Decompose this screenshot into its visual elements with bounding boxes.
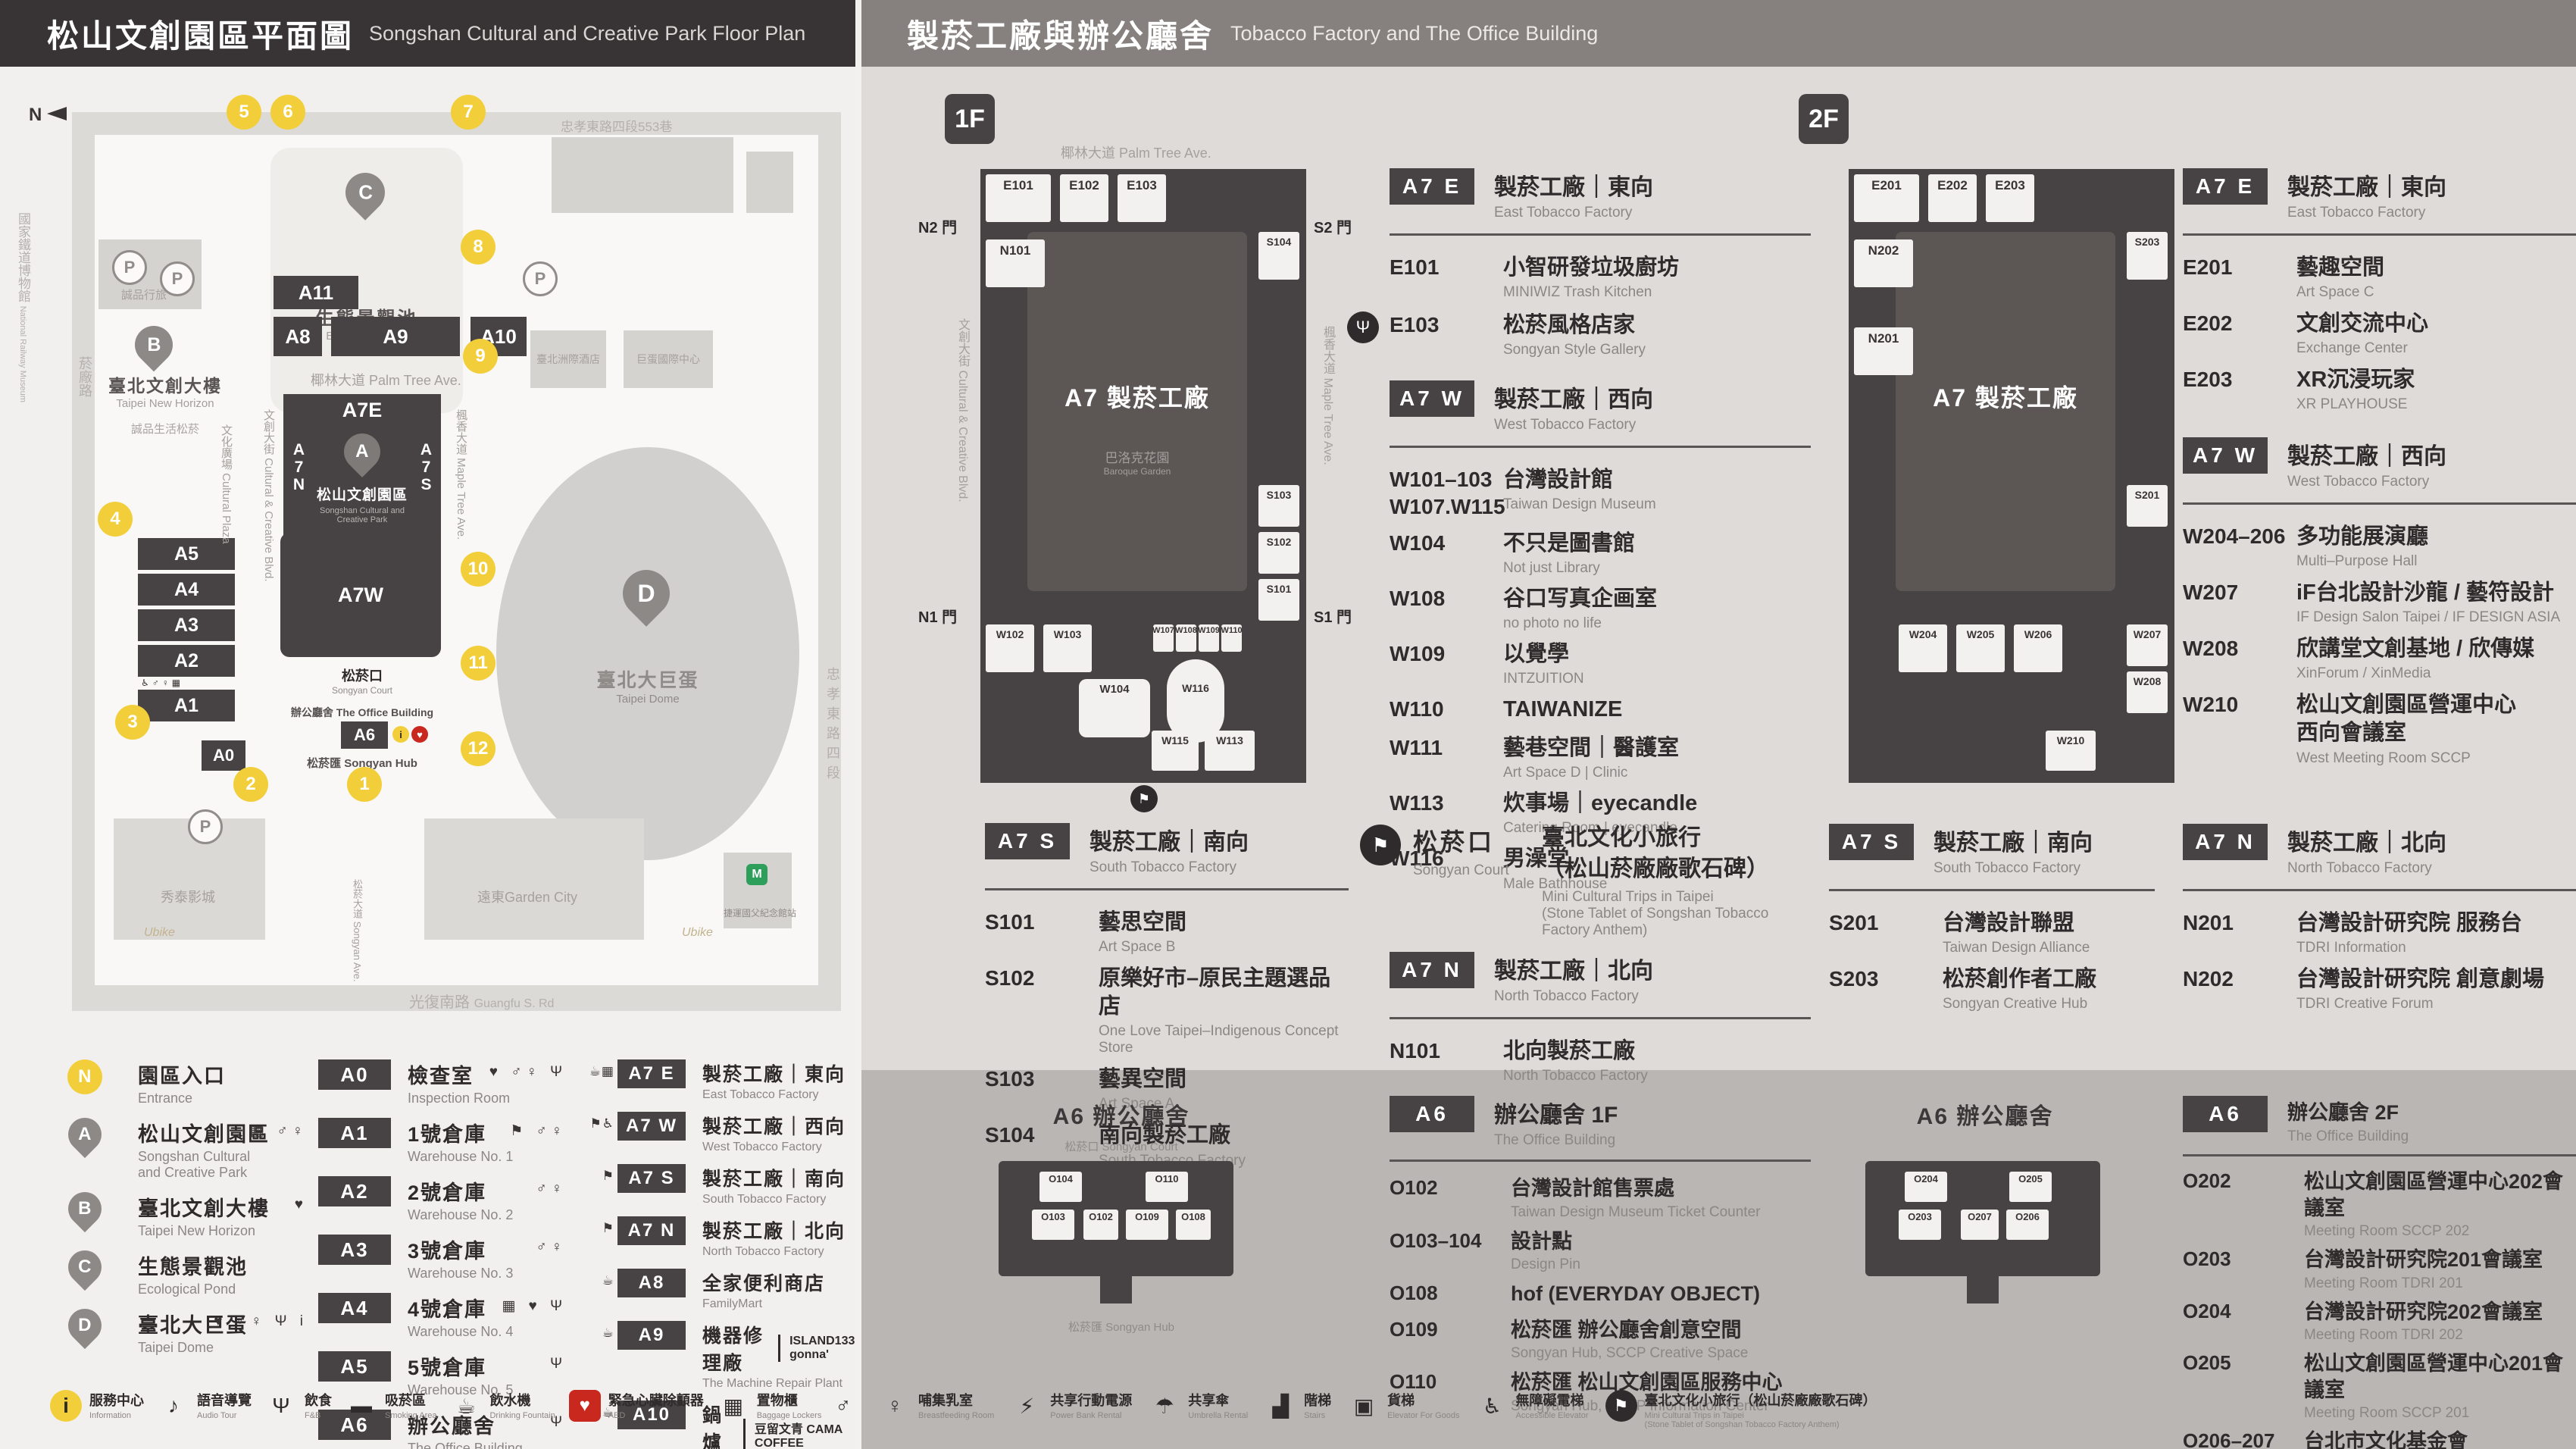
block-a8: A8 (274, 317, 322, 356)
left-header: 松山文創園區平面圖 Songshan Cultural and Creative… (0, 0, 858, 67)
legend-zh: 製菸工廠｜南向 (702, 1164, 846, 1191)
room-row: W110 TAIWANIZE (1390, 696, 1811, 726)
footer-en: Baggage Lockers (757, 1411, 822, 1420)
maple-ave-label: 楓香大道 Maple Tree Ave. (453, 409, 469, 540)
legend-zh: 1號倉庫 (408, 1118, 513, 1147)
plan2f-room: W205 (1956, 624, 2005, 672)
footer-item: ♪ 語音導覽 Audio Tour (158, 1390, 252, 1422)
footer-icon: ♀ (879, 1390, 911, 1422)
plan2f-room: S203 (2127, 232, 2168, 280)
plan1f-room: W108 (1176, 624, 1196, 652)
legend-icons: ▦ ♂♀ (250, 1122, 308, 1140)
plan2f-room: W206 (2014, 624, 2062, 672)
marker-1: 1 (347, 767, 382, 802)
road-label-lane553: 忠孝東路四段553巷 (561, 116, 672, 135)
room-row: S102 原樂好市–原民主題選品店One Love Taipei–Indigen… (985, 965, 1349, 1056)
footer-zh: 置物櫃 (757, 1390, 822, 1410)
plan1f-room: S101 (1258, 579, 1299, 621)
legend-en: Entrance (138, 1091, 226, 1106)
parking-icon: P (160, 261, 195, 296)
plan1f-room: W104 (1079, 679, 1150, 737)
footer-item: i 服務中心 Information (50, 1390, 144, 1422)
plan1f-room: N101 (986, 239, 1045, 287)
footer-zh: 飲水機 (489, 1390, 555, 1410)
footer-zh: 語音導覽 (197, 1390, 252, 1410)
footer-item: ⚑ 臺北文化小旅行（松山菸廠廠歌石碑） Mini Cultural Trips … (1605, 1390, 1877, 1429)
legend-row: A7 N 製菸工廠｜北向 North Tobacco Factory ⚑ (617, 1216, 858, 1259)
legend-en: East Tobacco Factory (702, 1088, 846, 1102)
legend-row: A4 4號倉庫 Warehouse No. 4 ▦ ♥ Ψ (318, 1293, 568, 1340)
plan2f-room: W207 (2127, 624, 2168, 666)
plan1f-room: S104 (1258, 232, 1299, 280)
legend-en: West Tobacco Factory (702, 1141, 846, 1154)
footer-zh: 無障礙電梯 (1516, 1390, 1589, 1410)
room-row: W108 谷口写真企画室no photo no life (1390, 585, 1811, 632)
section-a7n-2f: A7 N 製菸工廠｜北向North Tobacco Factory N201 台… (2183, 824, 2576, 1022)
footer-zh: 階梯 (1304, 1390, 1331, 1410)
footer-en: Mini Cultural Trips in Taipei (Stone Tab… (1645, 1411, 1877, 1429)
legend-row: A7 E 製菸工廠｜東向 East Tobacco Factory ☕▦ (617, 1059, 858, 1102)
legend-code: A9 (617, 1321, 686, 1350)
room-row: O205 松山文創園區營運中心201會議室Meeting Room SCCP 2… (2183, 1350, 2576, 1422)
room-row: W101–103 W107.W115 台灣設計館Taiwan Design Mu… (1390, 466, 1811, 521)
plan1f-road-top: 椰林大道 Palm Tree Ave. (1061, 142, 1211, 162)
block-a9: A9 (331, 317, 460, 356)
footer-en: AED (608, 1411, 704, 1420)
room-row: S201 台灣設計聯盟Taiwan Design Alliance (1829, 909, 2155, 956)
legend-zh: 5號倉庫 (408, 1351, 513, 1381)
section-a6-2f: A6 辦公廳舍 2FThe Office Building O202 松山文創園… (2183, 1096, 2576, 1449)
north-arrow-icon (47, 107, 67, 120)
songyan-court-label: 松菸口 Songyan Court (294, 665, 430, 696)
court-item-zh: 臺北文化小旅行 （松山菸廠廠歌石碑） (1542, 823, 1811, 884)
footer-item: ▬ 吸菸區 Smoking Area (345, 1390, 436, 1422)
a6-2f-room: O206 (2006, 1210, 2049, 1240)
footer-zh: 共享傘 (1188, 1390, 1248, 1410)
plan2f-room: N201 (1854, 327, 1913, 375)
room-row: O108 hof (EVERYDAY OBJECT) (1390, 1281, 1811, 1310)
block-a3: A3 (138, 609, 235, 641)
legend-en: Taipei Dome (138, 1340, 248, 1356)
court-item-en: Mini Cultural Trips in Taipei (Stone Tab… (1542, 889, 1811, 939)
a6-2f-room: O207 (1961, 1210, 1999, 1240)
legend-en: The Office Building (408, 1441, 523, 1449)
room-row: W111 藝巷空間｜醫護室Art Space D | Clinic (1390, 734, 1811, 781)
room-row: O109 松菸匯 辦公廳舍創意空間Songyan Hub, SCCP Creat… (1390, 1317, 1811, 1363)
legend-en: FamilyMart (702, 1297, 825, 1311)
footer-en: Elevator For Goods (1387, 1411, 1459, 1420)
court-title-en: Songyan Court (1413, 862, 1509, 879)
block-a1: A1 (138, 690, 235, 721)
legend-icons: ♥ (295, 1197, 308, 1213)
legend-row: A9 機器修理廠ISLAND133 gonna' The Machine Rep… (617, 1321, 858, 1391)
plan1f-room: S102 (1258, 532, 1299, 574)
legend-row: A1 1號倉庫 Warehouse No. 1 ⚑ ♂♀ (318, 1118, 568, 1165)
legend-row: C 生態景觀池 Ecological Pond (48, 1250, 309, 1297)
marker-5: 5 (227, 95, 261, 130)
block-a4: A4 (138, 574, 235, 606)
legend-zh: 製菸工廠｜北向 (702, 1216, 846, 1244)
a6-1f-room: O108 (1176, 1210, 1211, 1240)
plan2f-room: S201 (2127, 485, 2168, 527)
footer-item: ⚡ 共享行動電源 Power Bank Rental (1011, 1390, 1132, 1422)
legend-icons: ⚑ (572, 1169, 614, 1184)
plan1f-road-left: 文創大街 Cultural & Creative Blvd. (953, 318, 971, 502)
ubike-label: Ubike (144, 926, 175, 940)
legend-zh: 生態景觀池 (138, 1250, 248, 1280)
footer-icon: ♥ (569, 1390, 601, 1422)
footer-icon: i (50, 1390, 82, 1422)
legend-en: Inspection Room (408, 1091, 510, 1106)
plan1f-gate-s1: S1 門 (1314, 605, 1352, 627)
section-badge: A7 E (1390, 168, 1474, 205)
room-row: W204–206 多功能展演廳Multi–Purpose Hall (2183, 523, 2576, 570)
footer-item: ▣ 貨梯 Elevator For Goods (1348, 1390, 1459, 1422)
legend-en: Ecological Pond (138, 1282, 248, 1297)
legend-zh: 製菸工廠｜東向 (702, 1059, 846, 1087)
plan1f-room: W109 (1199, 624, 1219, 652)
plan2f-room: W208 (2127, 671, 2168, 713)
footer-icon: ▬ (345, 1390, 377, 1422)
marker-3: 3 (115, 705, 150, 740)
legend-en: Songshan Cultural and Creative Park (138, 1149, 270, 1181)
legend-row: A0 檢查室 Inspection Room ♥ ♂♀ Ψ (318, 1059, 568, 1106)
footer-en: Power Bank Rental (1050, 1411, 1132, 1420)
right-footer-strip: ♀ 哺集乳室 Breastfeeding Room ⚡ 共享行動電源 Power… (879, 1390, 1864, 1429)
palm-ave-label: 椰林大道 Palm Tree Ave. (311, 370, 461, 390)
legend-code: A1 (318, 1118, 391, 1148)
pin-a: A (336, 426, 388, 477)
floor-plan-poster: 松山文創園區平面圖 Songshan Cultural and Creative… (0, 0, 2576, 1449)
aed-icon: ♥ (411, 726, 428, 743)
legend-icons: ♂♀ (536, 1239, 567, 1256)
plan1f-room: W107 (1153, 624, 1174, 652)
legend-en: South Tobacco Factory (702, 1193, 846, 1206)
room-row: W109 以覺學INTZUITION (1390, 640, 1811, 687)
room-row: N101 北向製菸工廠North Tobacco Factory (1390, 1037, 1811, 1084)
parking-icon: P (188, 809, 223, 844)
room-row: S203 松菸創作者工廠Songyan Creative Hub (1829, 965, 2155, 1012)
legend-row: N 園區入口 Entrance (48, 1059, 309, 1106)
footer-en: Umbrella Rental (1188, 1411, 1248, 1420)
section-a7e-1f: A7 E 製菸工廠｜東向East Tobacco Factory E101 小智… (1390, 168, 1811, 369)
songyan-court-icon: ⚑ (1130, 785, 1158, 812)
footer-en: F&B (305, 1411, 332, 1420)
court-title-zh: 松菸口 (1413, 823, 1509, 858)
footer-icon: ♿ (1477, 1390, 1508, 1422)
legend-code: A7 W (617, 1112, 686, 1141)
legend-zh: 3號倉庫 (408, 1235, 513, 1264)
footer-zh: 緊急心臟除顫器 (608, 1390, 704, 1410)
room-row: Ψ E103 松菸風格店家Songyan Style Gallery (1390, 311, 1811, 358)
right-header: 製菸工廠與辦公廳舍 Tobacco Factory and The Office… (858, 0, 2576, 67)
room-row: W207 iF台北設計沙龍 / 藝符設計IF Design Salon Taip… (2183, 579, 2576, 626)
warehouse-icons: ♿♂♀▦ (141, 678, 183, 688)
footer-item: Ψ 飲食 F&B (265, 1390, 332, 1422)
section-badge: A6 (2183, 1096, 2268, 1132)
room-row: N202 台灣設計研究院 創意劇場TDRI Creative Forum (2183, 965, 2576, 1012)
legend-icons: Ψ (550, 1356, 567, 1372)
legend-icons: ♂♀ (536, 1181, 567, 1197)
plan2f-center-label: A7 製菸工廠 (1896, 379, 2115, 414)
legend-icons: ♥ ♂♀ Ψ (489, 1064, 567, 1081)
road-right (818, 112, 841, 1011)
legend-icons: ⚑ ♂♀ (510, 1122, 567, 1140)
legend-en: Warehouse No. 3 (408, 1266, 513, 1282)
cultural-plaza-label: 文化廣場 Cultural Plaza (218, 424, 234, 544)
plan1f-room: E103 (1118, 174, 1166, 222)
footer-zh: 服務中心 (89, 1390, 144, 1410)
legend-icons: ☕▦ (572, 1064, 614, 1079)
a6-2f-room: O203 (1899, 1210, 1941, 1240)
a6-1f-court-label: 松菸口 Songyan Court (1008, 1138, 1235, 1154)
plan1f-room: W102 (986, 624, 1034, 672)
block-a0: A0 (202, 740, 245, 771)
footer-en: Accessible Elevator (1516, 1411, 1589, 1420)
room-row: O103–104 設計點Design Pin (1390, 1228, 1811, 1274)
left-title-en: Songshan Cultural and Creative Park Floo… (369, 22, 805, 45)
cc-blvd-label: 文創大街 Cultural & Creative Blvd. (261, 409, 277, 582)
plan1f-room: W113 (1205, 731, 1255, 771)
legend-code: A7 E (617, 1059, 686, 1088)
plan1f-room: S103 (1258, 485, 1299, 527)
footer-icon: ☕ (450, 1390, 482, 1422)
dome-label: 臺北大巨蛋 Taipei Dome (572, 665, 724, 706)
block-a11: A11 (274, 276, 358, 309)
marker-8: 8 (461, 230, 496, 264)
legend-row: A 松山文創園區 Songshan Cultural and Creative … (48, 1118, 309, 1181)
a6-2f-room: O205 (2009, 1172, 2052, 1202)
room-row: O204 台灣設計研究院202會議室Meeting Room TDRI 202 (2183, 1299, 2576, 1344)
legend-code: A2 (318, 1176, 391, 1206)
legend-zh: 4號倉庫 (408, 1293, 513, 1322)
room-row: W208 欣講堂文創基地 / 欣傳媒XinForum / XinMedia (2183, 635, 2576, 682)
legend-badge: D (61, 1302, 108, 1349)
room-row: E101 小智研發垃圾廚坊MINIWIZ Trash Kitchen (1390, 254, 1811, 301)
parking-icon: P (112, 250, 147, 285)
songyan-ave-label: 松菸大道 Songyan Ave. (350, 879, 364, 982)
legend-icons: ⚑♿ (572, 1116, 614, 1131)
legend-zh: 製菸工廠｜西向 (702, 1112, 846, 1139)
a6-1f-room: O110 (1146, 1172, 1188, 1202)
block-a6: A6 (341, 721, 388, 749)
plan2f-room: E202 (1928, 174, 1977, 222)
section-a7w-2f: A7 W 製菸工廠｜西向West Tobacco Factory W204–20… (2183, 437, 2576, 776)
showtime-block (114, 818, 265, 940)
footer-zh: 哺集乳室 (918, 1390, 994, 1410)
room-row: E201 藝趣空間Art Space C (2183, 254, 2576, 301)
legend-en: Warehouse No. 1 (408, 1149, 513, 1165)
room-row: O102 台灣設計館售票處Taiwan Design Museum Ticket… (1390, 1175, 1811, 1221)
section-badge: A7 W (1390, 380, 1474, 417)
garden-city-label: 遠東Garden City (477, 887, 577, 906)
legend-en: Warehouse No. 4 (408, 1324, 513, 1340)
legend-zh: 臺北文創大樓 (138, 1192, 270, 1222)
room-row: O203 台灣設計研究院201會議室Meeting Room TDRI 201 (2183, 1247, 2576, 1292)
legend-en: Warehouse No. 2 (408, 1207, 513, 1223)
marker-9: 9 (463, 339, 498, 374)
neighbor-building (746, 152, 793, 213)
legend-en: Taipei New Horizon (138, 1223, 270, 1239)
legend-en: The Machine Repair Plant (702, 1377, 858, 1391)
legend-code: A4 (318, 1293, 391, 1323)
north-indicator: N (29, 105, 67, 126)
section-badge: A7 S (985, 823, 1070, 859)
section-a7n-1f: A7 N 製菸工廠｜北向North Tobacco Factory N101 北… (1390, 952, 1811, 1097)
plan1f-road-right: 楓香大道 Maple Tree Ave. (1318, 326, 1336, 465)
neighbor-building (552, 137, 733, 213)
legend-code: A8 (617, 1269, 686, 1297)
footer-item: ♀ 哺集乳室 Breastfeeding Room (879, 1390, 994, 1422)
footer-icon: Ψ (265, 1390, 297, 1422)
footer-zh: 共享行動電源 (1050, 1390, 1132, 1410)
a6-1f-room: O102 (1083, 1210, 1118, 1240)
a6-1f-room: O104 (1039, 1172, 1082, 1202)
legend-icons: ☕ (572, 1325, 614, 1341)
section-badge: A7 E (2183, 168, 2268, 205)
section-badge: A7 N (2183, 824, 2268, 860)
info-icon: i (392, 726, 409, 743)
road-left (72, 112, 95, 1011)
footer-icon: ▣ (1348, 1390, 1380, 1422)
footer-zh: 飲食 (305, 1390, 332, 1410)
right-title-en: Tobacco Factory and The Office Building (1230, 22, 1598, 45)
plan2f-room: W204 (1899, 624, 1947, 672)
right-title-zh: 製菸工廠與辦公廳舍 (907, 11, 1214, 57)
footer-item: ▟ 階梯 Stairs (1265, 1390, 1331, 1422)
footer-item: ☕ 飲水機 Drinking Fountain (450, 1390, 555, 1422)
marker-11: 11 (461, 646, 496, 681)
room-row: O206–207 台北市文化基金會 松山文創園區營運中心Taipei Cultu… (2183, 1429, 2576, 1449)
legend-badge: B (61, 1185, 108, 1232)
block-a7e-label: A7E (283, 399, 441, 422)
legend-icons: ▦ ♥ Ψ (502, 1297, 567, 1315)
room-icon: Ψ (1347, 311, 1379, 343)
footer-icon: ▟ (1265, 1390, 1296, 1422)
legend-code: A3 (318, 1235, 391, 1265)
marker-2: 2 (233, 767, 268, 802)
legend-code: A0 (318, 1059, 391, 1090)
room-row: W210 松山文創園區營運中心 西向會議室West Meeting Room S… (2183, 691, 2576, 766)
plan1f-room: W103 (1043, 624, 1092, 672)
legend-zh: 全家便利商店 (702, 1269, 825, 1296)
plan1f-gate-n2: N2 門 (918, 215, 957, 237)
footer-en: Smoking Area (385, 1411, 436, 1420)
legend-col-places: N 園區入口 Entrance A 松山文創園區 Songshan Cultur… (48, 1059, 309, 1367)
room-row: O202 松山文創園區營運中心202會議室Meeting Room SCCP 2… (2183, 1169, 2576, 1240)
section-a7s-2f: A7 S 製菸工廠｜南向South Tobacco Factory S201 台… (1829, 824, 2155, 1022)
legend-row: A7 S 製菸工廠｜南向 South Tobacco Factory ⚑ (617, 1164, 858, 1206)
plan2f-room: N202 (1854, 239, 1913, 287)
plan2f-room: E201 (1854, 174, 1919, 222)
footer-icon: ▦ (717, 1390, 749, 1422)
dome-intl-block: 巨蛋國際中心 (624, 330, 713, 388)
mrt-label: 捷運國父紀念館站 (718, 906, 802, 919)
railway-museum-label: 國家鐵道博物館 National Railway Museum (14, 212, 33, 402)
section-a6-1f: A6 辦公廳舍 1FThe Office Building O102 台灣設計館… (1390, 1096, 1811, 1422)
footer-en: Audio Tour (197, 1411, 252, 1420)
legend-zh: 2號倉庫 (408, 1176, 513, 1206)
legend-row: B 臺北文創大樓 Taipei New Horizon ♥ (48, 1192, 309, 1239)
marker-10: 10 (461, 552, 496, 587)
floor-badge-2f: 2F (1799, 94, 1849, 144)
showtime-label: 秀泰影城 (161, 887, 215, 906)
legend-en: North Tobacco Factory (702, 1245, 846, 1259)
a6-1f-room: O103 (1032, 1210, 1074, 1240)
footer-en: Information (89, 1411, 144, 1420)
footer-en: Breastfeeding Room (918, 1411, 994, 1420)
taipei-dome (496, 447, 799, 860)
footer-zh: 吸菸區 (385, 1390, 436, 1410)
section-badge: A7 N (1390, 952, 1474, 988)
a6-2f-stem (1967, 1276, 1999, 1303)
section-badge: A6 (1390, 1096, 1474, 1132)
room-row: W104 不只是圖書館Not just Library (1390, 530, 1811, 577)
left-footer-strip: i 服務中心 Information ♪ 語音導覽 Audio Tour Ψ 飲… (50, 1390, 853, 1422)
legend-row: A2 2號倉庫 Warehouse No. 2 ♂♀ (318, 1176, 568, 1223)
legend-icons: ☕ (572, 1273, 614, 1288)
legend-row: A8 全家便利商店 FamilyMart ☕ (617, 1269, 858, 1311)
footer-icon: ♪ (158, 1390, 189, 1422)
block-a2: A2 (138, 645, 235, 677)
ubike-label: Ubike (682, 926, 713, 940)
metro-logo: M (746, 864, 767, 885)
footer-en: Drinking Fountain (489, 1411, 555, 1420)
legend-badge: N (60, 1052, 109, 1101)
marker-12: 12 (461, 731, 496, 766)
plan1f-baroque: 巴洛克花園 Baroque Garden (1027, 447, 1247, 477)
marker-4: 4 (98, 502, 133, 537)
sccp-label: 松山文創園區 Songshan Cultural and Creative Pa… (283, 484, 441, 524)
plan1f-room: W115 (1152, 731, 1199, 771)
a6-1f-plan-title: A6 辦公廳舍 (1008, 1097, 1235, 1131)
left-title-zh: 松山文創園區平面圖 (47, 11, 354, 57)
songyan-court-icon: ⚑ (1360, 825, 1401, 865)
a6-1f-room: O109 (1126, 1210, 1168, 1240)
intercontinental-block: 臺北洲際酒店 (530, 330, 606, 388)
room-row: S101 藝思空間Art Space B (985, 909, 1349, 956)
block-a7w: A7W (280, 533, 441, 657)
plan1f-gate-n1: N1 門 (918, 605, 957, 627)
plan1f-center-label: A7 製菸工廠 (1027, 379, 1247, 414)
footer-zh: 臺北文化小旅行（松山菸廠廠歌石碑） (1645, 1390, 1877, 1410)
legend-row: D 臺北大巨蛋 Taipei Dome ♥ ♂♀ Ψ i (48, 1309, 309, 1356)
road-label-zhongxiao: 忠孝東路四段 (823, 667, 843, 785)
legend-badge: C (61, 1244, 108, 1291)
footer-item: ▦ 置物櫃 Baggage Lockers (717, 1390, 822, 1422)
a6-2f-plan-title: A6 辦公廳舍 (1871, 1097, 2099, 1131)
legend-code: A7 N (617, 1216, 686, 1245)
room-row: E202 文創交流中心Exchange Center (2183, 310, 2576, 357)
footer-icon: ☂ (1149, 1390, 1180, 1422)
legend-row: A7 W 製菸工廠｜西向 West Tobacco Factory ⚑♿ (617, 1112, 858, 1154)
footer-item: ♥ 緊急心臟除顫器 AED (569, 1390, 704, 1422)
room-row: E203 XR沉浸玩家XR PLAYHOUSE (2183, 366, 2576, 413)
panel-divider (855, 0, 861, 1449)
legend-row: A3 3號倉庫 Warehouse No. 3 ♂♀ (318, 1235, 568, 1282)
section-badge: A7 S (1829, 824, 1914, 860)
road-label-guangfu: 光復南路 Guangfu S. Rd (409, 990, 554, 1012)
plan1f-room: E101 (986, 174, 1051, 222)
legend-code: A5 (318, 1351, 391, 1382)
a6-1f-stem (1100, 1276, 1132, 1303)
footer-icon: ⚑ (1605, 1390, 1637, 1422)
legend-zh: 機器修理廠 (702, 1321, 767, 1375)
office-building-label: 辦公廳舍 The Office Building (279, 705, 445, 720)
footer-en: Stairs (1304, 1411, 1331, 1420)
footer-zh: 貨梯 (1387, 1390, 1459, 1410)
plan1f-gate-s2: S2 門 (1314, 215, 1352, 237)
